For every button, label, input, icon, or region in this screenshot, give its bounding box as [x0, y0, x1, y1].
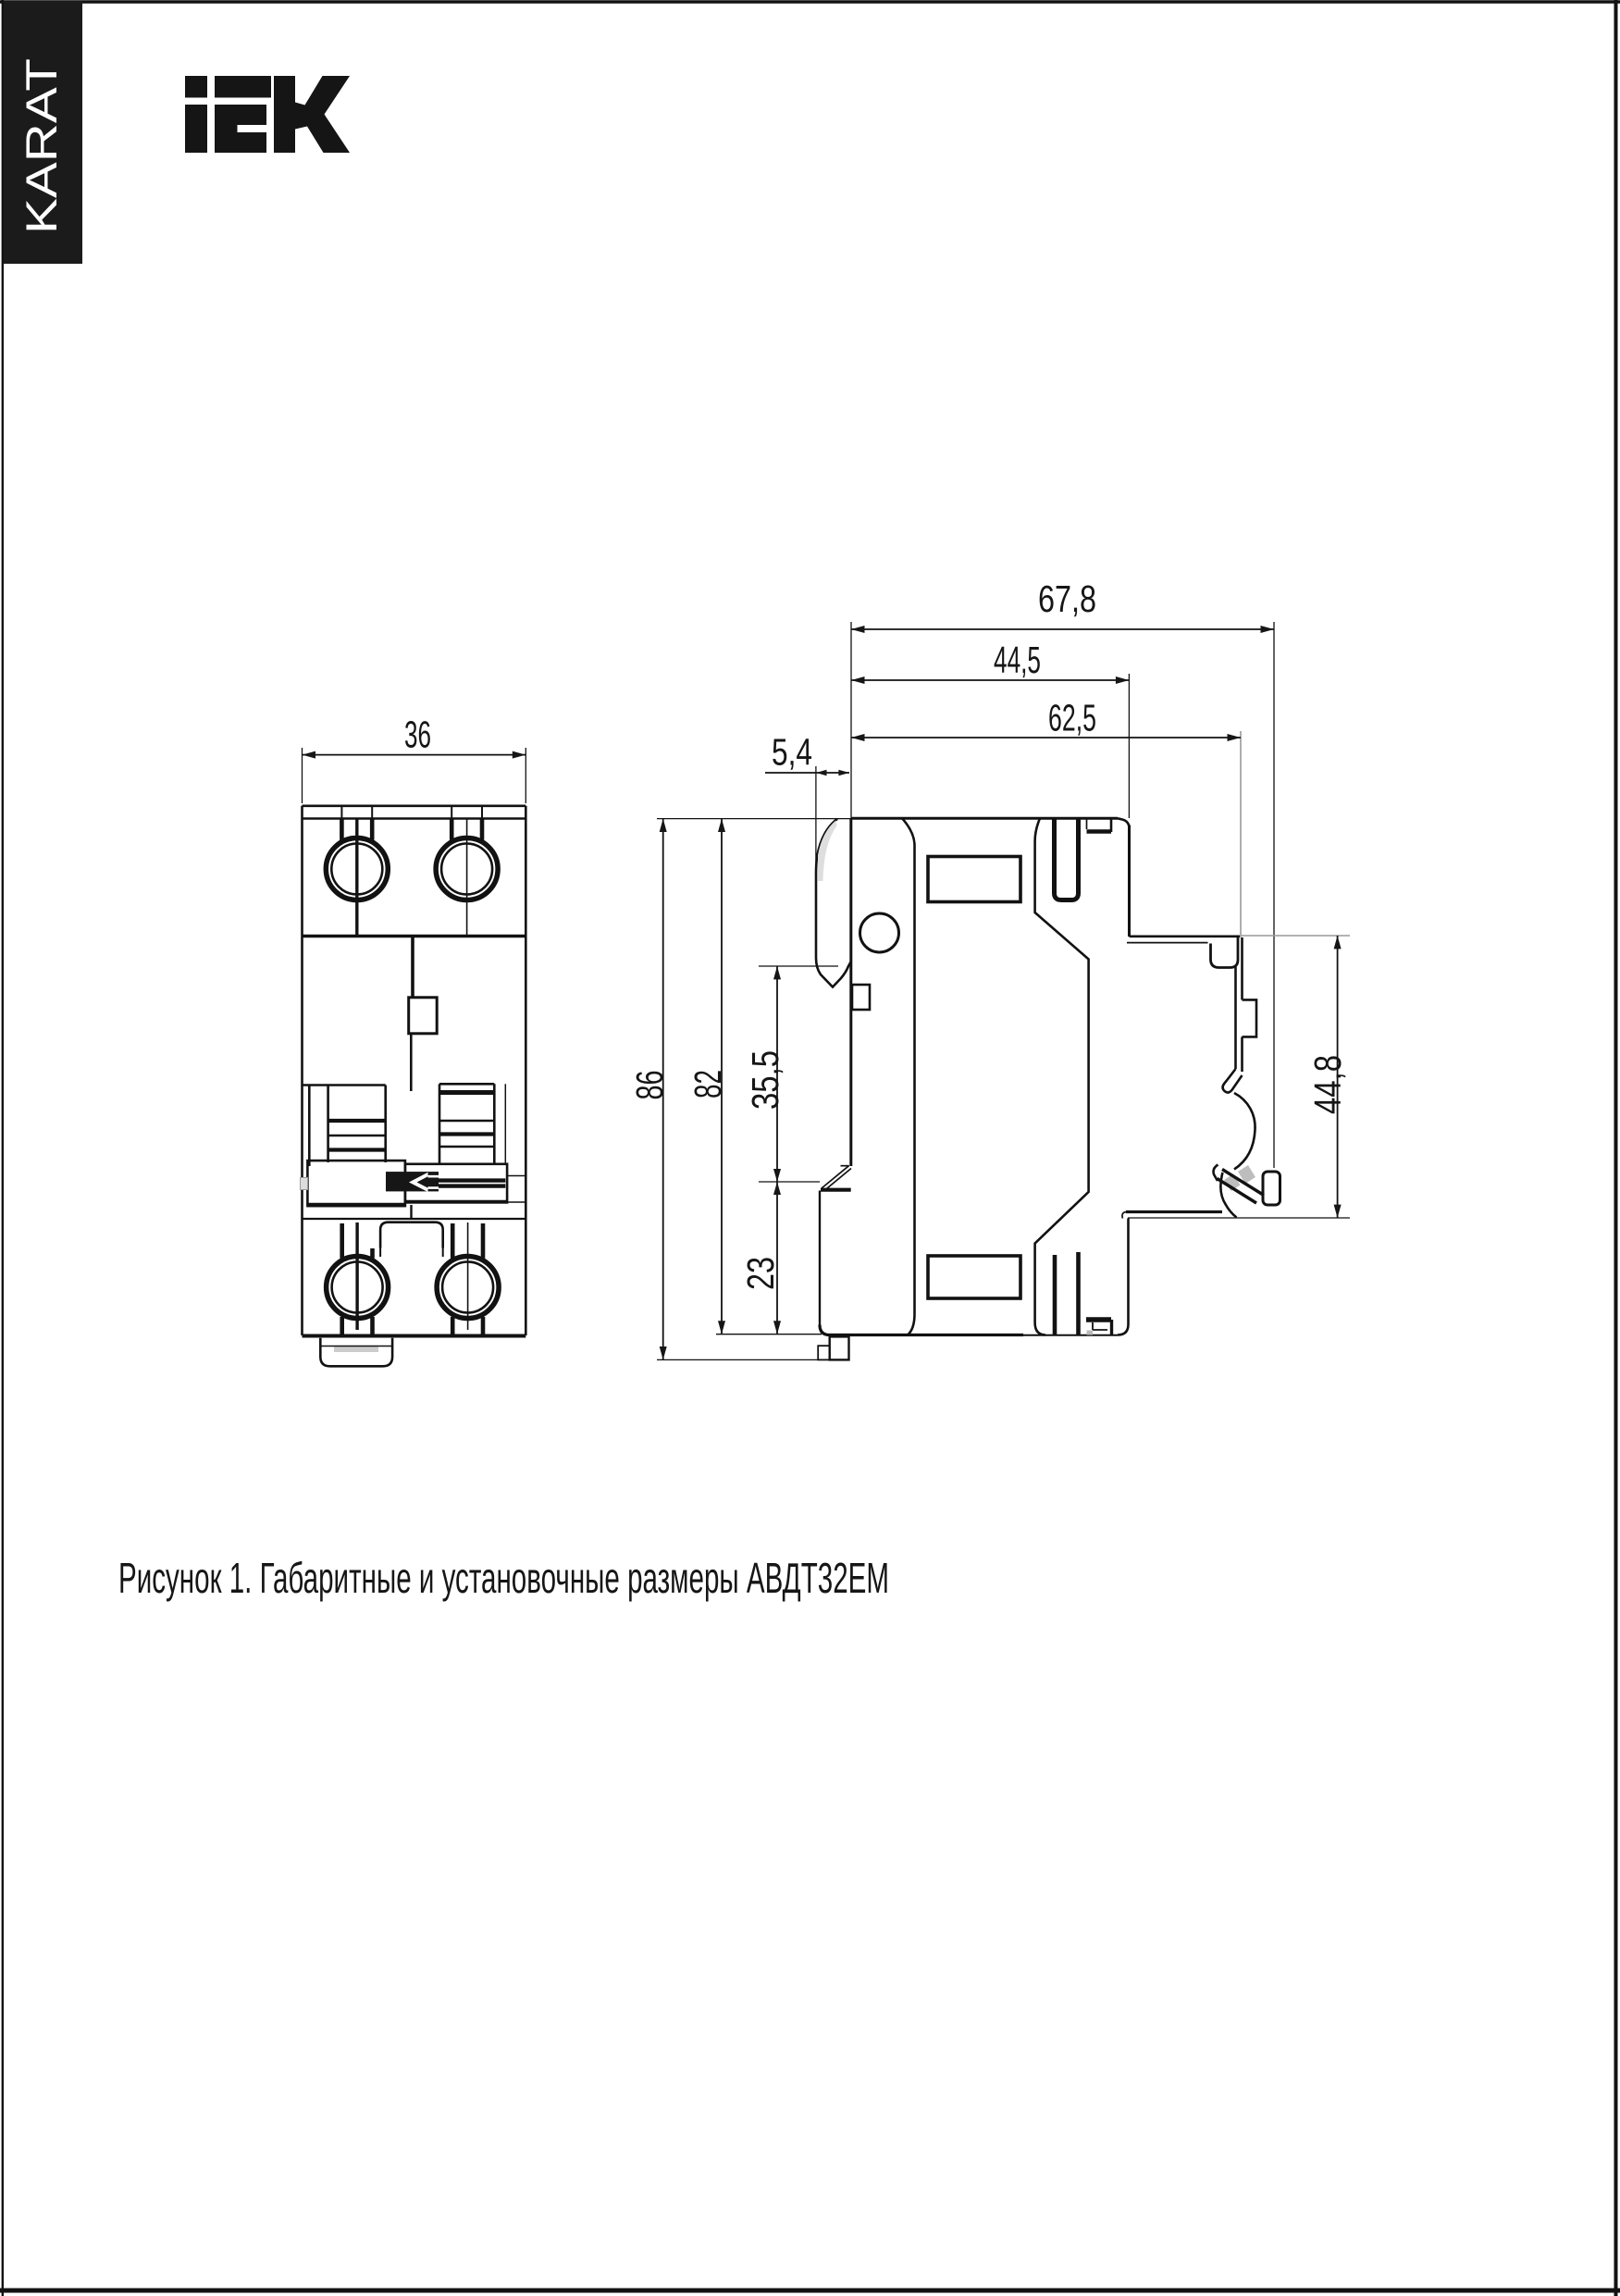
- svg-text:86: 86: [628, 1071, 671, 1100]
- svg-text:KARAT: KARAT: [17, 58, 66, 234]
- svg-text:44,8: 44,8: [1306, 1055, 1349, 1114]
- svg-text:Рисунок 1. Габаритные и устано: Рисунок 1. Габаритные и установочные раз…: [118, 1554, 889, 1602]
- svg-text:5,4: 5,4: [772, 731, 812, 774]
- svg-text:44,5: 44,5: [994, 639, 1041, 681]
- svg-text:82: 82: [686, 1070, 729, 1098]
- svg-text:35,5: 35,5: [744, 1050, 786, 1110]
- svg-text:62,5: 62,5: [1048, 697, 1096, 739]
- svg-text:67,8: 67,8: [1038, 577, 1096, 620]
- svg-text:23: 23: [739, 1257, 782, 1290]
- svg-text:36: 36: [404, 714, 431, 756]
